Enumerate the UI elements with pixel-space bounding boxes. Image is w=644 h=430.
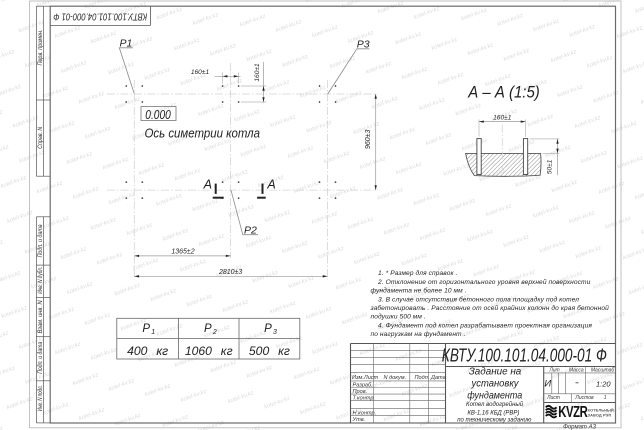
svg-text:kotel-kv.kz: kotel-kv.kz [455,103,482,118]
svg-text:Разраб.: Разраб. [353,382,373,388]
svg-text:kotel-kv.kz: kotel-kv.kz [377,1,404,16]
svg-text:kotel-kv.kz: kotel-kv.kz [610,121,637,136]
svg-text:kotel-kv.kz: kotel-kv.kz [48,120,75,135]
svg-text:kotel-kv.kz: kotel-kv.kz [144,383,171,398]
svg-text:kotel-kv.kz: kotel-kv.kz [72,372,99,387]
svg-text:kotel-kv.kz: kotel-kv.kz [401,253,428,268]
svg-text:kotel-kv.kz: kotel-kv.kz [431,37,458,52]
svg-text:kotel-kv.kz: kotel-kv.kz [300,401,327,416]
svg-text:kotel-kv.kz: kotel-kv.kz [293,180,320,195]
svg-text:kotel-kv.kz: kotel-kv.kz [598,181,625,196]
svg-text:kotel-kv.kz: kotel-kv.kz [90,31,117,46]
svg-text:kotel-kv.kz: kotel-kv.kz [425,132,452,147]
svg-text:Подп.: Подп. [415,375,430,381]
svg-text:4. Фундамент под котел раз: 4. Фундамент под котел разрабатывает про… [378,321,592,329]
svg-text:0.000: 0.000 [145,107,171,122]
svg-text:Масса: Масса [569,368,584,374]
svg-text:kotel-kv.kz: kotel-kv.kz [1,305,28,320]
svg-text:kotel-kv.kz: kotel-kv.kz [245,235,272,250]
svg-text:kotel-kv.kz: kotel-kv.kz [437,72,464,87]
svg-text:А – А (1:5): А – А (1:5) [467,84,539,102]
svg-text:kotel-kv.kz: kotel-kv.kz [527,114,554,129]
svg-text:kotel-kv.kz: kotel-kv.kz [19,150,46,165]
svg-text:kotel-kv.kz: kotel-kv.kz [42,402,69,417]
svg-text:3: 3 [273,329,277,336]
svg-text:kotel-kv.kz: kotel-kv.kz [275,19,302,34]
svg-text:1:20: 1:20 [596,379,611,388]
svg-text:kotel-kv.kz: kotel-kv.kz [306,120,333,135]
svg-text:kotel-kv.kz: kotel-kv.kz [60,60,87,75]
svg-text:kotel-kv.kz: kotel-kv.kz [598,0,625,9]
svg-text:kotel-kv.kz: kotel-kv.kz [282,54,309,69]
svg-text:kotel-kv.kz: kotel-kv.kz [359,156,386,171]
svg-text:kotel-kv.kz: kotel-kv.kz [341,312,368,327]
svg-text:kotel-kv.kz: kotel-kv.kz [0,270,22,285]
svg-text:kotel-kv.kz: kotel-kv.kz [270,114,297,129]
svg-text:kotel-kv.kz: kotel-kv.kz [96,252,123,267]
svg-text:kotel-kv.kz: kotel-kv.kz [401,383,428,398]
svg-text:500 кг: 500 кг [249,344,290,358]
svg-text:kotel-kv.kz: kotel-kv.kz [192,12,219,27]
svg-text:kotel-kv.kz: kotel-kv.kz [604,216,631,231]
svg-text:kotel-kv.kz: kotel-kv.kz [90,347,117,362]
svg-text:kotel-kv.kz: kotel-kv.kz [0,175,27,190]
svg-text:2. Отклонение от горизонтал: 2. Отклонение от горизонтального уровня … [377,278,591,286]
svg-text:kotel-kv.kz: kotel-kv.kz [562,0,589,4]
svg-text:kotel-kv.kz: kotel-kv.kz [48,307,75,322]
svg-text:kotel-kv.kz: kotel-kv.kz [180,259,207,274]
svg-text:kotel-kv.kz: kotel-kv.kz [198,233,225,248]
svg-text:КВТУ.100.101.04.000-01 Ф: КВТУ.100.101.04.000-01 Ф [442,345,607,365]
svg-text:kotel-kv.kz: kotel-kv.kz [108,378,135,393]
svg-text:kotel-kv.kz: kotel-kv.kz [575,245,602,260]
svg-text:Н.контр.: Н.контр. [353,411,377,417]
svg-text:kotel-kv.kz: kotel-kv.kz [72,186,99,201]
svg-text:kotel-kv.kz: kotel-kv.kz [263,396,290,411]
svg-text:подушки 500 мм .: подушки 500 мм . [371,313,426,321]
svg-text:kotel-kv.kz: kotel-kv.kz [108,192,135,207]
svg-text:kotel-kv.kz: kotel-kv.kz [503,48,530,63]
svg-text:kotel-kv.kz: kotel-kv.kz [443,163,470,178]
svg-text:Р: Р [142,323,150,335]
svg-text:kotel-kv.kz: kotel-kv.kz [365,61,392,76]
svg-text:kotel-kv.kz: kotel-kv.kz [102,157,129,172]
svg-text:kotel-kv.kz: kotel-kv.kz [317,246,344,261]
svg-text:Пров.: Пров. [353,389,368,395]
svg-text:kotel-kv.kz: kotel-kv.kz [42,85,69,100]
svg-text:kotel-kv.kz: kotel-kv.kz [401,66,428,81]
svg-text:kotel-kv.kz: kotel-kv.kz [395,348,422,363]
svg-text:kotel-kv.kz: kotel-kv.kz [395,31,422,46]
svg-text:kotel-kv.kz: kotel-kv.kz [90,217,117,232]
svg-text:kotel-kv.kz: kotel-kv.kz [599,311,626,326]
svg-text:kotel-kv.kz: kotel-kv.kz [108,61,135,76]
svg-text:kotel-kv.kz: kotel-kv.kz [335,90,362,105]
svg-text:kotel-kv.kz: kotel-kv.kz [467,42,494,57]
svg-text:kotel-kv.kz: kotel-kv.kz [54,25,81,40]
svg-text:400 кг: 400 кг [127,344,168,358]
svg-text:Котел водогрейный: Котел водогрейный [466,401,524,408]
svg-text:kotel-kv.kz: kotel-kv.kz [341,0,368,10]
svg-text:kotel-kv.kz: kotel-kv.kz [198,420,225,430]
svg-text:kotel-kv.kz: kotel-kv.kz [640,91,644,106]
svg-text:kotel-kv.kz: kotel-kv.kz [0,330,10,345]
svg-text:kotel-kv.kz: kotel-kv.kz [42,215,69,230]
svg-text:kotel-kv.kz: kotel-kv.kz [293,366,320,381]
svg-text:kotel-kv.kz: kotel-kv.kz [12,115,39,130]
svg-text:kotel-kv.kz: kotel-kv.kz [239,13,266,28]
svg-text:kotel-kv.kz: kotel-kv.kz [0,84,22,99]
svg-text:Справ. N: Справ. N [38,126,44,149]
svg-text:kotel-kv.kz: kotel-kv.kz [162,228,189,243]
svg-text:kotel-kv.kz: kotel-kv.kz [329,55,356,70]
svg-text:kotel-kv.kz: kotel-kv.kz [623,377,644,392]
svg-text:kotel-kv.kz: kotel-kv.kz [156,7,183,22]
svg-text:kotel-kv.kz: kotel-kv.kz [132,257,159,272]
svg-text:kotel-kv.kz: kotel-kv.kz [288,275,315,290]
svg-text:kotel-kv.kz: kotel-kv.kz [335,277,362,292]
svg-text:P1: P1 [120,37,133,49]
svg-text:Масштаб: Масштаб [591,368,615,374]
svg-text:kotel-kv.kz: kotel-kv.kz [246,365,273,380]
svg-text:Подп. и дата: Подп. и дата [38,224,44,258]
svg-text:kotel-kv.kz: kotel-kv.kz [252,270,279,285]
svg-text:kotel-kv.kz: kotel-kv.kz [216,78,243,93]
svg-text:kotel-kv.kz: kotel-kv.kz [640,408,644,423]
svg-text:kotel-kv.kz: kotel-kv.kz [311,211,338,226]
svg-text:kotel-kv.kz: kotel-kv.kz [84,126,111,141]
svg-text:kotel-kv.kz: kotel-kv.kz [0,239,4,254]
svg-text:3. В случае отсутствия бето: 3. В случае отсутствия бетонного пола пл… [378,295,579,303]
svg-text:kotel-kv.kz: kotel-kv.kz [461,7,488,22]
svg-text:kotel-kv.kz: kotel-kv.kz [222,299,249,314]
svg-text:kotel-kv.kz: kotel-kv.kz [568,210,595,225]
svg-text:kotel-kv.kz: kotel-kv.kz [359,342,386,357]
svg-text:kotel-kv.kz: kotel-kv.kz [0,49,16,64]
svg-text:960±3: 960±3 [365,129,372,149]
svg-text:kotel-kv.kz: kotel-kv.kz [186,294,213,309]
svg-text:kotel-kv.kz: kotel-kv.kz [114,96,141,111]
svg-text:kotel-kv.kz: kotel-kv.kz [485,203,512,218]
svg-text:kotel-kv.kz: kotel-kv.kz [114,413,141,428]
svg-text:kotel-kv.kz: kotel-kv.kz [377,187,404,202]
svg-text:kotel-kv.kz: kotel-kv.kz [491,425,518,430]
svg-text:kotel-kv.kz: kotel-kv.kz [508,139,535,154]
svg-text:kotel-kv.kz: kotel-kv.kz [383,222,410,237]
svg-text:Р: Р [264,323,272,335]
svg-text:kotel-kv.kz: kotel-kv.kz [497,13,524,28]
svg-text:по техническому заданию: по техническому заданию [457,418,532,424]
svg-text:kotel-kv.kz: kotel-kv.kz [156,193,183,208]
svg-text:Формат А3: Формат А3 [563,424,596,430]
svg-text:N докум.: N докум. [384,375,407,381]
svg-text:Лит: Лит [548,368,559,374]
svg-text:kotel-kv.kz: kotel-kv.kz [616,342,643,357]
svg-text:kotel-kv.kz: kotel-kv.kz [281,240,308,255]
svg-text:kotel-kv.kz: kotel-kv.kz [66,281,93,296]
svg-text:kotel-kv.kz: kotel-kv.kz [419,97,446,112]
svg-text:kotel-kv.kz: kotel-kv.kz [616,25,643,40]
svg-text:фундамента не более 10 мм .: фундамента не более 10 мм . [371,287,467,295]
svg-text:kotel-kv.kz: kotel-kv.kz [84,312,111,327]
svg-text:1365±2: 1365±2 [171,248,194,255]
svg-text:160±1: 160±1 [254,63,261,82]
svg-text:Инв. N дубл.: Инв. N дубл. [38,267,44,294]
svg-text:kotel-kv.kz: kotel-kv.kz [569,24,596,39]
svg-text:kotel-kv.kz: kotel-kv.kz [389,127,416,142]
svg-text:Листов: Листов [574,395,594,401]
svg-text:P2: P2 [244,224,257,236]
svg-text:Р: Р [204,323,212,335]
svg-text:kotel-kv.kz: kotel-kv.kz [532,205,559,220]
svg-text:kotel-kv.kz: kotel-kv.kz [233,109,260,124]
svg-text:kotel-kv.kz: kotel-kv.kz [210,359,237,374]
svg-text:2: 2 [212,329,217,336]
svg-text:1: 1 [151,329,155,336]
svg-text:Ось симетрии котла: Ось симетрии котла [145,125,261,140]
svg-text:kotel-kv.kz: kotel-kv.kz [0,426,4,430]
svg-text:kotel-kv.kz: kotel-kv.kz [287,145,314,160]
svg-text:kotel-kv.kz: kotel-kv.kz [60,246,87,261]
svg-text:Лист: Лист [546,395,560,401]
svg-text:kotel-kv.kz: kotel-kv.kz [258,0,285,3]
svg-text:Задание на: Задание на [469,366,522,377]
svg-text:kotel-kv.kz: kotel-kv.kz [264,209,291,224]
svg-text:kotel-kv.kz: kotel-kv.kz [467,229,494,244]
svg-text:kotel-kv.kz: kotel-kv.kz [174,168,201,183]
svg-text:160±1: 160±1 [191,69,210,76]
svg-text:kotel-kv.kz: kotel-kv.kz [210,43,237,58]
svg-text:kotel-kv.kz: kotel-kv.kz [330,185,357,200]
svg-text:kotel-kv.kz: kotel-kv.kz [557,84,584,99]
svg-text:Утв.: Утв. [352,417,366,423]
svg-text:kotel-kv.kz: kotel-kv.kz [126,222,153,237]
svg-text:kotel-kv.kz: kotel-kv.kz [30,276,57,291]
svg-text:Изм.Лист: Изм.Лист [352,375,379,381]
svg-text:kotel-kv.kz: kotel-kv.kz [0,365,16,380]
svg-text:kotel-kv.kz: kotel-kv.kz [413,6,440,21]
svg-text:kotel-kv.kz: kotel-kv.kz [192,198,219,213]
svg-text:kotel-kv.kz: kotel-kv.kz [634,0,644,15]
svg-text:kotel-kv.kz: kotel-kv.kz [347,216,374,231]
svg-text:kotel-kv.kz: kotel-kv.kz [581,150,608,165]
svg-text:kotel-kv.kz: kotel-kv.kz [78,91,105,106]
svg-text:KVZR: KVZR [558,403,588,420]
svg-text:kotel-kv.kz: kotel-kv.kz [246,48,273,63]
svg-text:kotel-kv.kz: kotel-kv.kz [533,18,560,33]
svg-text:kotel-kv.kz: kotel-kv.kz [84,0,111,10]
svg-text:kotel-kv.kz: kotel-kv.kz [503,234,530,249]
svg-text:А: А [266,177,275,191]
svg-text:kotel-kv.kz: kotel-kv.kz [539,240,566,255]
svg-text:1. * Размер для справок .: 1. * Размер для справок . [378,269,458,277]
svg-text:фундамента: фундамента [467,389,522,401]
svg-text:kotel-kv.kz: kotel-kv.kz [574,115,601,130]
svg-text:kotel-kv.kz: kotel-kv.kz [197,103,224,118]
svg-text:установку: установку [471,378,520,389]
svg-text:kotel-kv.kz: kotel-kv.kz [228,204,255,219]
svg-text:kotel-kv.kz: kotel-kv.kz [144,67,171,82]
svg-text:kotel-kv.kz: kotel-kv.kz [150,288,177,303]
svg-text:kotel-kv.kz: kotel-kv.kz [461,138,488,153]
svg-text:1: 1 [604,395,607,401]
svg-text:Взам. инв. N: Взам. инв. N [38,300,44,334]
svg-text:забетонировать . Расстояние: забетонировать . Расстояние от осей край… [370,304,610,312]
svg-text:kotel-kv.kz: kotel-kv.kz [586,55,613,70]
svg-text:kotel-kv.kz: kotel-kv.kz [634,186,644,201]
svg-text:КВТУ.100.101.04.000-01 Ф: КВТУ.100.101.04.000-01 Ф [53,10,147,21]
svg-text:Подп. и дата: Подп. и дата [38,341,44,374]
svg-text:kotel-kv.kz: kotel-kv.kz [311,24,338,39]
svg-text:Т.контр.: Т.контр. [353,396,376,402]
svg-text:И: И [544,378,551,389]
svg-text:kotel-kv.kz: kotel-kv.kz [240,330,267,345]
svg-text:Инв. N подл.: Инв. N подл. [38,385,44,411]
svg-text:КВ-1,16 КБД (РВР): КВ-1,16 КБД (РВР) [467,410,519,416]
svg-text:kotel-kv.kz: kotel-kv.kz [0,0,27,4]
svg-text:kotel-kv.kz: kotel-kv.kz [0,109,4,124]
svg-text:kotel-kv.kz: kotel-kv.kz [353,251,380,266]
svg-text:kotel-kv.kz: kotel-kv.kz [628,282,644,297]
svg-text:kotel-kv.kz: kotel-kv.kz [550,49,577,64]
svg-text:kotel-kv.kz: kotel-kv.kz [641,221,644,236]
svg-text:kotel-kv.kz: kotel-kv.kz [0,144,10,159]
svg-text:160±1: 160±1 [493,115,512,122]
svg-text:kotel-kv.kz: kotel-kv.kz [395,162,422,177]
svg-text:kotel-kv.kz: kotel-kv.kz [156,323,183,338]
svg-text:kotel-kv.kz: kotel-kv.kz [622,60,644,75]
svg-text:А: А [203,177,212,191]
svg-text:2810±3: 2810±3 [218,269,242,276]
svg-text:kotel-kv.kz: kotel-kv.kz [305,306,332,321]
svg-text:kotel-kv.kz: kotel-kv.kz [78,407,105,422]
svg-text:kotel-kv.kz: kotel-kv.kz [66,151,93,166]
svg-text:kotel-kv.kz: kotel-kv.kz [173,37,200,52]
svg-text:kotel-kv.kz: kotel-kv.kz [138,162,165,177]
svg-text:kotel-kv.kz: kotel-kv.kz [497,329,524,344]
svg-text:kotel-kv.kz: kotel-kv.kz [312,341,339,356]
svg-text:50±1: 50±1 [546,159,553,174]
svg-text:kotel-kv.kz: kotel-kv.kz [449,198,476,213]
svg-text:kotel-kv.kz: kotel-kv.kz [551,179,578,194]
svg-text:1060 кг: 1060 кг [185,344,233,358]
svg-text:kotel-kv.kz: kotel-kv.kz [227,390,254,405]
svg-text:kotel-kv.kz: kotel-kv.kz [299,85,326,100]
svg-text:Дата: Дата [430,375,446,381]
svg-text:kotel-kv.kz: kotel-kv.kz [269,301,296,316]
svg-text:kotel-kv.kz: kotel-kv.kz [473,264,500,279]
svg-text:Перв. примен.: Перв. примен. [38,30,44,66]
svg-text:kotel-kv.kz: kotel-kv.kz [240,144,267,159]
svg-text:kotel-kv.kz: kotel-kv.kz [114,283,141,298]
svg-text:kotel-kv.kz: kotel-kv.kz [180,389,207,404]
svg-text:kotel-kv.kz: kotel-kv.kz [54,341,81,356]
svg-text:ЗАВОД РЭП: ЗАВОД РЭП [588,412,612,417]
svg-text:kotel-kv.kz: kotel-kv.kz [419,227,446,242]
svg-text:kotel-kv.kz: kotel-kv.kz [544,144,571,159]
svg-text:по нагрузкам на фундамент .: по нагрузкам на фундамент . [371,330,466,338]
svg-text:kotel-kv.kz: kotel-kv.kz [221,169,248,184]
svg-text:kotel-kv.kz: kotel-kv.kz [622,247,644,262]
svg-text:P3: P3 [357,38,370,50]
svg-text:kotel-kv.kz: kotel-kv.kz [263,79,290,94]
svg-text:kotel-kv.kz: kotel-kv.kz [162,414,189,429]
svg-text:kotel-kv.kz: kotel-kv.kz [413,192,440,207]
